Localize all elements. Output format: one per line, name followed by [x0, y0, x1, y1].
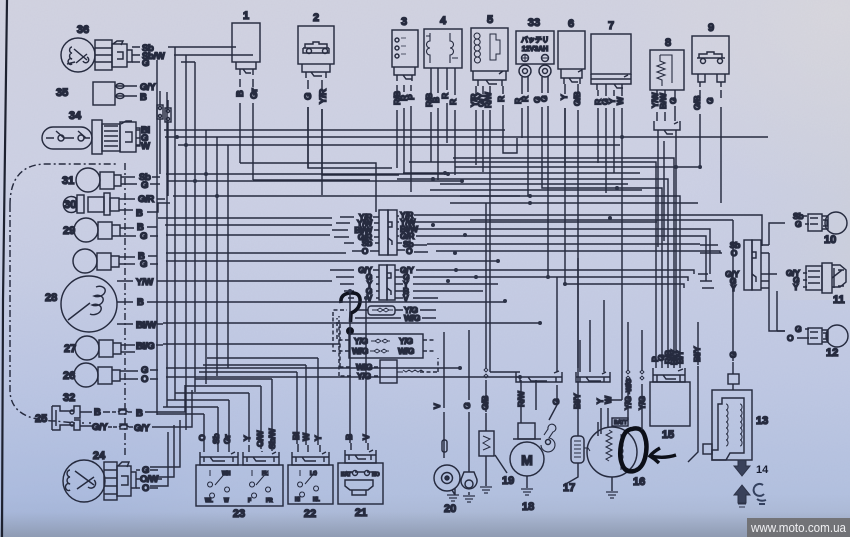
svg-text:G: G [141, 180, 148, 191]
svg-text:3: 3 [401, 16, 407, 28]
svg-text:23: 23 [233, 508, 245, 520]
svg-text:O: O [197, 434, 207, 441]
svg-text:24: 24 [93, 450, 106, 462]
svg-text:-W/G: -W/G [626, 378, 633, 394]
svg-text:G/R: G/R [138, 194, 154, 205]
svg-text:WH: WH [222, 471, 231, 477]
svg-text:B/W: B/W [658, 92, 668, 109]
svg-text:10: 10 [824, 234, 836, 246]
svg-text:21: 21 [355, 507, 367, 519]
svg-text:12V3AH: 12V3AH [522, 46, 548, 53]
svg-text:G: G [462, 402, 472, 409]
svg-text:Bl/Y: Bl/Y [692, 346, 702, 362]
svg-text:Y: Y [559, 94, 569, 100]
svg-text:Y/G: Y/G [357, 371, 371, 381]
svg-text:O: O [731, 248, 738, 258]
svg-text:Gr: Gr [222, 434, 232, 444]
svg-text:BATT: BATT [614, 420, 627, 426]
svg-text:26: 26 [63, 370, 75, 382]
svg-text:R: R [440, 93, 450, 99]
svg-text:FL: FL [262, 471, 268, 477]
svg-text:W: W [615, 96, 625, 105]
svg-text:M: M [521, 452, 533, 468]
svg-text:G: G [795, 219, 802, 229]
svg-text:O/W: O/W [255, 430, 265, 447]
svg-text:Bl/G: Bl/G [136, 341, 154, 352]
svg-text:F: F [248, 498, 251, 504]
svg-text:7: 7 [608, 20, 614, 32]
svg-text:W/G: W/G [404, 313, 421, 323]
svg-text:G/B: G/B [480, 396, 490, 410]
svg-text:O: O [142, 483, 149, 494]
svg-text:34: 34 [69, 110, 82, 122]
svg-text:19: 19 [502, 475, 514, 487]
svg-text:Y/G: Y/G [637, 396, 647, 410]
svg-text:Bl: Bl [291, 432, 301, 440]
svg-text:Y: Y [793, 282, 799, 292]
svg-text:HI: HI [295, 497, 301, 503]
svg-text:8: 8 [665, 37, 671, 49]
svg-text:R: R [520, 96, 530, 102]
svg-text:6: 6 [568, 18, 574, 30]
svg-text:13: 13 [756, 415, 768, 427]
svg-text:バッテリ: バッテリ [521, 36, 549, 44]
svg-text:Y: Y [242, 435, 252, 441]
svg-text:O: O [141, 374, 148, 385]
svg-text:Y/G: Y/G [399, 336, 413, 346]
svg-text:R/W: R/W [516, 390, 526, 407]
svg-text:W/G: W/G [398, 346, 415, 356]
svg-text:9: 9 [708, 22, 714, 34]
svg-text:Sb: Sb [211, 434, 221, 444]
svg-text:18: 18 [522, 501, 534, 513]
svg-text:B: B [94, 407, 101, 418]
svg-text:FR: FR [266, 498, 273, 504]
svg-text:B: B [140, 92, 147, 103]
svg-text:O: O [406, 246, 413, 256]
svg-text:G: G [303, 93, 314, 100]
svg-text:35: 35 [56, 87, 68, 99]
svg-text:HL: HL [313, 497, 320, 503]
svg-text:Y/G: Y/G [623, 396, 633, 410]
svg-text:LO: LO [310, 471, 317, 477]
svg-text:G: G [142, 58, 149, 69]
svg-text:G: G [551, 398, 561, 405]
svg-text:HO: HO [372, 472, 380, 478]
svg-text:O: O [787, 333, 794, 343]
svg-text:B: B [137, 297, 144, 308]
svg-text:G/Y: G/Y [92, 422, 108, 433]
svg-text:15: 15 [662, 429, 674, 441]
svg-text:G: G [539, 95, 549, 102]
svg-text:G: G [140, 259, 147, 270]
svg-text:WL: WL [205, 498, 213, 504]
svg-text:www.moto.com.ua: www.moto.com.ua [750, 520, 847, 535]
svg-text:28: 28 [45, 292, 57, 304]
svg-text:R: R [448, 99, 458, 105]
svg-text:32: 32 [63, 392, 75, 404]
svg-text:36: 36 [77, 24, 89, 36]
svg-text:Y/W: Y/W [136, 277, 153, 288]
svg-text:30: 30 [64, 199, 76, 211]
svg-text:Bl/Y: Bl/Y [572, 393, 582, 409]
svg-text:29: 29 [63, 225, 75, 237]
svg-text:20: 20 [444, 503, 456, 515]
svg-text:31: 31 [62, 175, 74, 187]
svg-text:B: B [136, 208, 143, 219]
svg-text:B: B [344, 434, 354, 440]
svg-text:G/B: G/B [572, 92, 582, 106]
svg-text:22: 22 [304, 508, 316, 520]
svg-text:R/W: R/W [483, 91, 493, 108]
svg-text:R: R [496, 96, 506, 102]
svg-text:G/Y: G/Y [134, 423, 150, 434]
svg-text:B: B [136, 408, 143, 419]
svg-text:W: W [141, 141, 150, 152]
svg-text:27: 27 [64, 343, 76, 355]
svg-text:G: G [705, 97, 715, 104]
svg-text:5: 5 [487, 14, 493, 26]
svg-text:V: V [432, 403, 442, 409]
svg-text:33: 33 [528, 17, 540, 29]
svg-text:25: 25 [35, 413, 47, 425]
svg-text:4: 4 [440, 15, 447, 27]
svg-text:Bl/W: Bl/W [136, 320, 156, 331]
svg-text:B/Y: B/Y [675, 350, 685, 364]
svg-text:G: G [668, 97, 678, 104]
svg-text:14: 14 [756, 464, 769, 476]
svg-text:1: 1 [243, 10, 249, 22]
svg-text:B: B [235, 90, 246, 97]
svg-text:P: P [406, 94, 416, 100]
svg-text:16: 16 [633, 476, 645, 488]
svg-text:12: 12 [826, 347, 838, 359]
svg-text:Y/R: Y/R [318, 89, 329, 104]
svg-text:W: W [224, 498, 229, 504]
svg-text:11: 11 [833, 294, 845, 306]
svg-text:Gr: Gr [249, 88, 260, 99]
svg-text:2: 2 [313, 12, 319, 24]
svg-text:G: G [795, 324, 802, 334]
svg-text:G: G [140, 231, 147, 242]
svg-text:17: 17 [563, 482, 575, 494]
svg-text:BAT: BAT [341, 472, 351, 478]
